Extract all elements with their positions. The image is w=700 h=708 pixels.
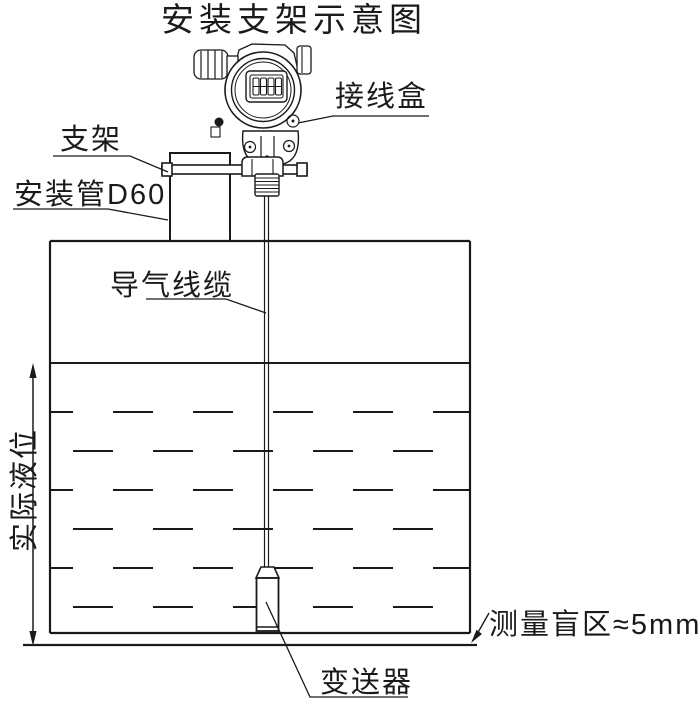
housing-tab: [211, 127, 220, 137]
label-actual-level: 实际液位: [8, 428, 41, 552]
yoke-bolt-dot: [249, 146, 252, 149]
bracket-plate: [162, 163, 307, 176]
installation-diagram: 安装支架示意图 接线盒 支架 安装管D60 导气线缆 实际液位 测量盲区≈5mm…: [0, 0, 700, 708]
arrow-down-left-icon: [471, 630, 482, 643]
arrow-down-icon: [29, 631, 36, 646]
tank: [23, 241, 477, 645]
label-air-cable: 导气线缆: [110, 269, 234, 302]
label-blind-zone: 测量盲区≈5mm: [489, 608, 700, 641]
air-cable: [265, 196, 269, 568]
probe-shoulder: [256, 567, 279, 578]
threaded-stem: [255, 174, 279, 196]
leader-junction-box: [298, 116, 429, 123]
cable-gland-body: [194, 50, 228, 79]
bracket-plate-bar: [162, 165, 307, 174]
label-mounting-pipe: 安装管D60: [14, 178, 166, 211]
leader-blind-zone: [471, 613, 489, 643]
yoke-bolt-dot: [288, 145, 291, 148]
housing-bolt-dot: [292, 120, 295, 123]
diagram-title: 安装支架示意图: [161, 1, 427, 38]
side-plug: [297, 46, 311, 74]
label-junction-box: 接线盒: [335, 80, 428, 113]
label-transmitter: 变送器: [320, 666, 413, 699]
label-bracket: 支架: [60, 123, 122, 156]
leader-bracket: [53, 156, 168, 172]
lcd-display: [246, 71, 287, 102]
hex-nut: [242, 157, 283, 176]
bracket-plate-right-cap: [297, 163, 307, 176]
diagram-canvas: 安装支架示意图 接线盒 支架 安装管D60 导气线缆 实际液位 测量盲区≈5mm…: [0, 0, 700, 708]
housing-bolt-icon: [215, 118, 224, 127]
side-plug-body: [297, 46, 311, 74]
hex-nut-body: [242, 157, 283, 176]
arrow-up-icon: [29, 363, 36, 378]
